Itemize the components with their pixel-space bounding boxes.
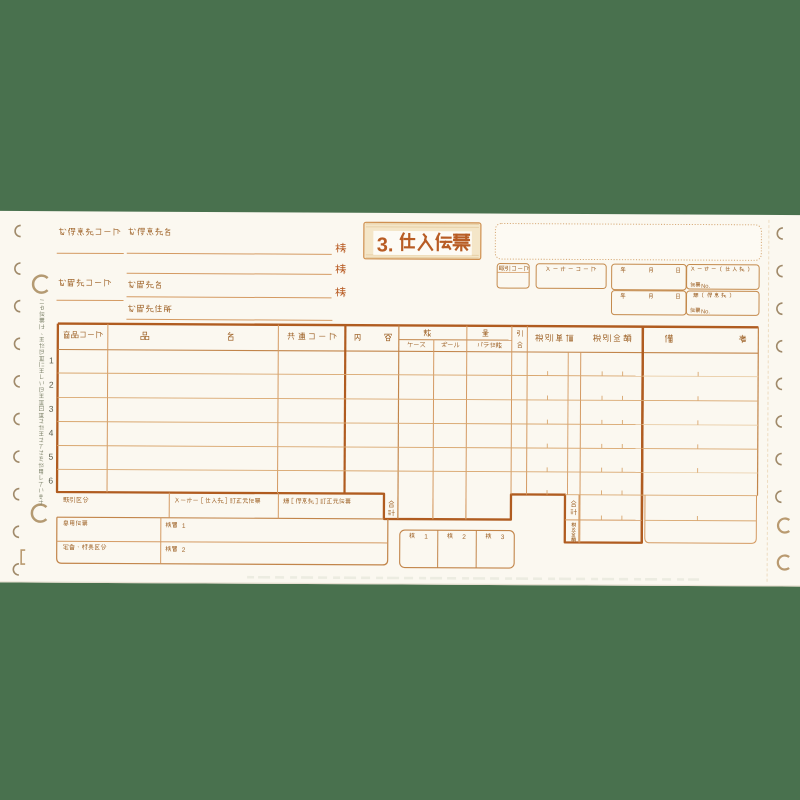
svg-text:2: 2 <box>49 380 54 390</box>
svg-text:4: 4 <box>49 428 54 438</box>
svg-text:5: 5 <box>48 452 53 462</box>
svg-text:No.: No. <box>701 284 710 290</box>
svg-text:1: 1 <box>424 534 428 541</box>
svg-text:3: 3 <box>49 404 54 414</box>
svg-text:1: 1 <box>49 355 54 365</box>
svg-text:1: 1 <box>182 523 186 530</box>
svg-text:3.: 3. <box>377 234 394 256</box>
svg-text:6: 6 <box>48 476 53 486</box>
svg-text:No.: No. <box>701 309 710 315</box>
svg-text:3: 3 <box>501 534 505 541</box>
svg-text:2: 2 <box>182 547 186 554</box>
svg-text:2: 2 <box>462 534 466 541</box>
